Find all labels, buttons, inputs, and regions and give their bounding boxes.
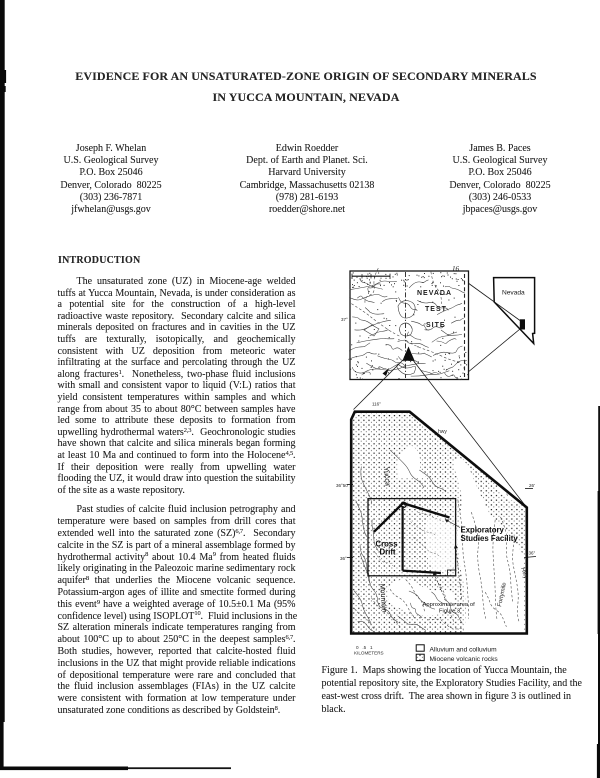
svg-text:116°: 116°	[372, 402, 381, 407]
svg-text:TEST: TEST	[425, 306, 447, 313]
svg-text:36°: 36°	[529, 551, 536, 556]
svg-text:26': 26'	[529, 483, 535, 488]
svg-text:Drift: Drift	[380, 548, 396, 557]
svg-text:36°: 36°	[340, 556, 347, 561]
svg-text:Miocene volcanic rocks: Miocene volcanic rocks	[430, 656, 499, 663]
svg-text:NEVADA: NEVADA	[417, 290, 452, 297]
svg-text:Alluvium and colluvium: Alluvium and colluvium	[430, 647, 498, 654]
svg-text:16: 16	[452, 265, 460, 273]
svg-text:Figure 3: Figure 3	[439, 609, 460, 615]
svg-text:KILOMETERS: KILOMETERS	[354, 651, 384, 656]
svg-text:SITE: SITE	[426, 322, 446, 329]
svg-text:36°50': 36°50'	[336, 483, 349, 488]
svg-text:Approximate area of: Approximate area of	[423, 602, 476, 608]
svg-text:0 .5 1: 0 .5 1	[356, 645, 373, 650]
svg-text:hwy: hwy	[438, 429, 447, 435]
svg-text:Nevada: Nevada	[502, 290, 525, 297]
svg-text:Studies Facility: Studies Facility	[461, 534, 519, 543]
svg-text:37°: 37°	[341, 317, 348, 322]
